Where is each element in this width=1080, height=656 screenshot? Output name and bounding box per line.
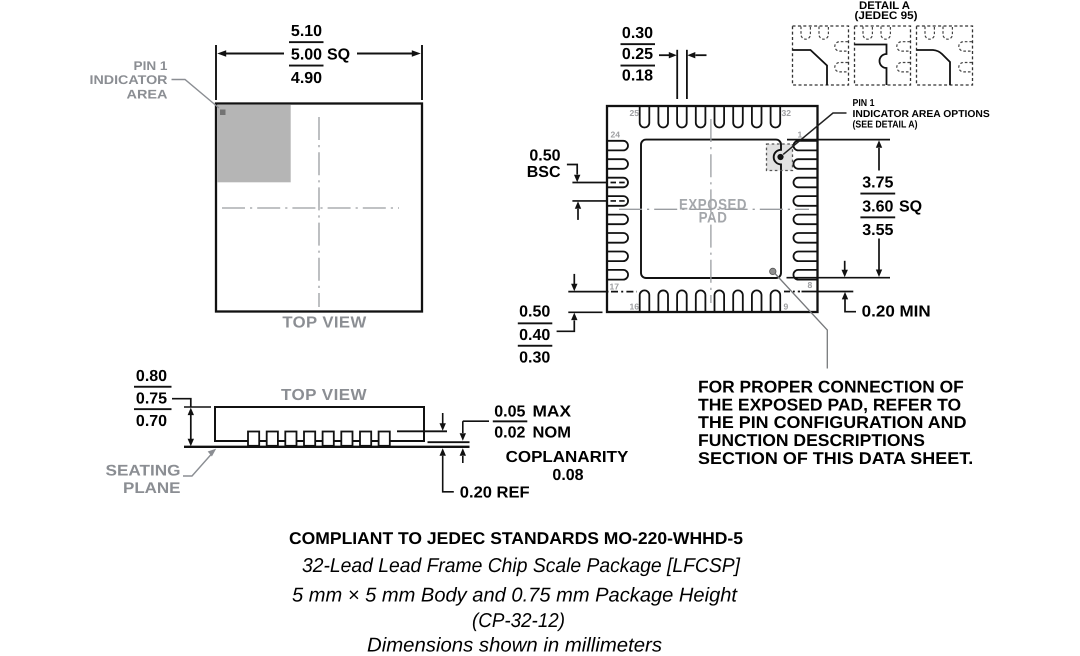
svg-text:0.05: 0.05 [494,404,525,421]
svg-text:0.25: 0.25 [622,46,653,63]
svg-text:3.75: 3.75 [862,175,893,192]
svg-text:0.50: 0.50 [529,148,560,165]
svg-text:PLANE: PLANE [123,480,181,497]
svg-text:Dimensions shown in millimeter: Dimensions shown in millimeters [367,635,662,656]
svg-text:FOR PROPER CONNECTION OF: FOR PROPER CONNECTION OF [698,378,964,397]
svg-text:0.75: 0.75 [136,390,167,407]
svg-text:BSC: BSC [527,164,561,181]
svg-text:0.50: 0.50 [519,304,550,321]
svg-text:0.70: 0.70 [136,413,167,430]
svg-text:25: 25 [629,108,639,118]
svg-text:TOP VIEW: TOP VIEW [282,315,367,332]
svg-text:32: 32 [782,108,792,118]
svg-text:SEATING: SEATING [106,463,181,480]
svg-text:0.30: 0.30 [622,25,653,42]
svg-text:5.10: 5.10 [291,23,322,40]
svg-text:4.90: 4.90 [291,70,322,87]
svg-text:SQ: SQ [327,47,350,64]
svg-text:5 mm × 5 mm Body and 0.75 mm P: 5 mm × 5 mm Body and 0.75 mm Package Hei… [292,585,738,607]
svg-text:5.00: 5.00 [291,47,322,64]
svg-text:(CP-32-12): (CP-32-12) [472,610,565,632]
svg-text:0.02: 0.02 [494,424,525,441]
svg-text:17: 17 [609,282,619,292]
svg-text:9: 9 [784,302,789,312]
svg-text:24: 24 [610,129,620,139]
svg-text:(SEE DETAIL A): (SEE DETAIL A) [853,120,918,131]
svg-text:1: 1 [798,129,803,139]
svg-text:PIN 1: PIN 1 [853,98,875,109]
svg-text:FUNCTION DESCRIPTIONS: FUNCTION DESCRIPTIONS [698,431,925,450]
svg-text:SECTION OF THIS DATA SHEET.: SECTION OF THIS DATA SHEET. [698,449,973,468]
svg-text:INDICATOR AREA OPTIONS: INDICATOR AREA OPTIONS [853,109,991,120]
svg-text:(JEDEC 95): (JEDEC 95) [855,10,918,22]
svg-text:32-Lead Lead Frame Chip Scale: 32-Lead Lead Frame Chip Scale Package [L… [302,555,740,577]
svg-text:3.60: 3.60 [862,198,893,215]
svg-text:0.20 REF: 0.20 REF [460,484,530,501]
svg-text:16: 16 [629,302,639,312]
svg-text:NOM: NOM [533,424,572,441]
svg-text:0.08: 0.08 [552,467,583,484]
svg-text:8: 8 [808,280,813,290]
svg-text:0.40: 0.40 [519,327,550,344]
svg-text:THE PIN CONFIGURATION AND: THE PIN CONFIGURATION AND [698,413,967,432]
svg-text:INDICATOR: INDICATOR [90,73,168,87]
svg-text:0.18: 0.18 [622,68,653,85]
svg-text:MAX: MAX [533,404,572,421]
svg-text:SQ: SQ [899,198,922,215]
svg-text:0.80: 0.80 [136,368,167,385]
svg-text:PAD: PAD [699,210,728,227]
svg-text:PIN 1: PIN 1 [134,59,168,73]
svg-text:COMPLIANT TO JEDEC STANDARDS M: COMPLIANT TO JEDEC STANDARDS MO-220-WHHD… [289,529,743,548]
svg-text:AREA: AREA [127,87,168,101]
svg-text:0.30: 0.30 [519,349,550,366]
svg-text:THE EXPOSED PAD, REFER TO: THE EXPOSED PAD, REFER TO [698,395,961,414]
svg-text:0.20 MIN: 0.20 MIN [862,303,931,320]
svg-text:3.55: 3.55 [862,222,893,239]
svg-text:COPLANARITY: COPLANARITY [506,449,629,466]
svg-text:TOP VIEW: TOP VIEW [281,387,368,404]
